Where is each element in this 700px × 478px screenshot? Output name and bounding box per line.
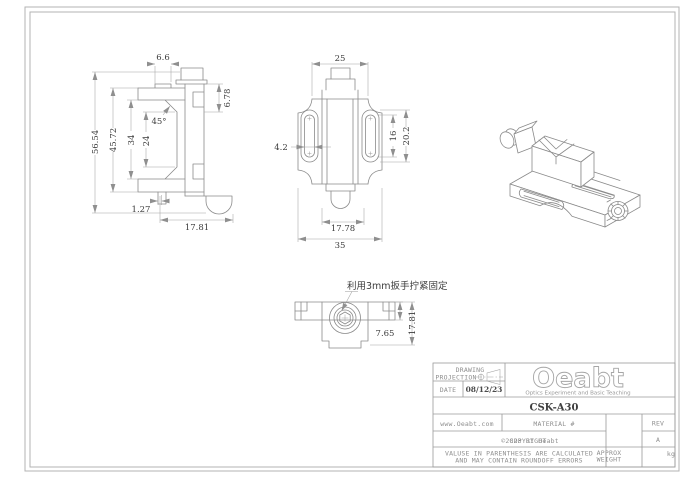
weight-unit: kg [667,450,675,458]
dim-overall-height: 56.54 [91,130,101,154]
dim-slot-width: 4.2 [274,143,288,153]
brand-tagline: Optics Experiment and Basic Teaching [525,391,630,397]
projection-label-line2: PROJECTION [435,374,476,382]
title-block: DRAWING PROJECTION DATE 08/12/23 Oeabt O… [433,363,675,467]
isometric-view [498,121,640,227]
wrench-annotation: 利用3mm扳手拧紧固定 [347,280,448,292]
dim-overall-depth: 17.81 [408,311,418,335]
dim-chamfer-angle: 45° [151,117,166,127]
front-view: 25 4.2 16 20.2 17.78 35 [274,54,412,251]
projection-cell: DRAWING PROJECTION [435,366,503,385]
copyright-sub: ©2023 BY Oeabt [501,437,559,445]
weight-label-line2: WEIGHT [597,456,622,464]
front-view-geometry [298,68,382,209]
disclaimer-line2: AND MAY CONTAIN ROUNDOFF ERRORS [455,457,583,465]
dim-top-width: 6.6 [156,53,170,63]
cad-drawing-sheet: 56.54 45.72 34 24 6.6 45° 6.78 [0,0,700,478]
website: www.Oeabt.com [440,420,493,428]
dim-slot-inner-length: 16 [389,131,399,142]
brand-logo: Oeabt [532,363,624,394]
rev-label: REV [652,420,664,428]
bottom-view: 利用3mm扳手拧紧固定 7.65 17.81 [295,280,448,348]
logo-cell: Oeabt Optics Experiment and Basic Teachi… [525,363,630,397]
date-cell: DATE 08/12/23 [440,385,503,394]
date-label: DATE [440,386,456,394]
dim-bar-height: 7.65 [376,329,395,339]
drawing-canvas: 56.54 45.72 34 24 6.6 45° 6.78 [0,0,700,478]
side-view-dimensions: 56.54 45.72 34 24 6.6 45° 6.78 [91,53,233,233]
rev-value: A [656,436,660,444]
bottom-view-geometry [295,302,395,348]
date-value: 08/12/23 [466,385,503,394]
front-view-dimensions: 25 4.2 16 20.2 17.78 35 [274,54,412,251]
bottom-view-dimensions: 7.65 17.81 [370,302,418,345]
dim-front-top-width: 25 [335,54,346,64]
dim-front-overall-width: 35 [335,241,346,251]
dim-bottom-offset: 1.27 [132,205,151,215]
dim-front-bottom-width: 17.78 [331,224,355,234]
dim-height-inner: 24 [142,136,152,147]
dim-slot-outer-length: 20.2 [402,127,412,146]
copyright-cell: COPYRIGHT ©2023 BY Oeabt [501,437,559,445]
dim-height-outer: 45.72 [109,128,119,152]
side-view: 56.54 45.72 34 24 6.6 45° 6.78 [91,53,233,233]
side-view-geometry [138,68,232,214]
dim-height-mid: 34 [127,135,137,146]
part-number: CSK-A30 [530,403,579,414]
material-label: MATERIAL # [533,420,574,428]
dim-top-right-height: 6.78 [223,89,233,108]
dim-bottom-width: 17.81 [185,223,209,233]
